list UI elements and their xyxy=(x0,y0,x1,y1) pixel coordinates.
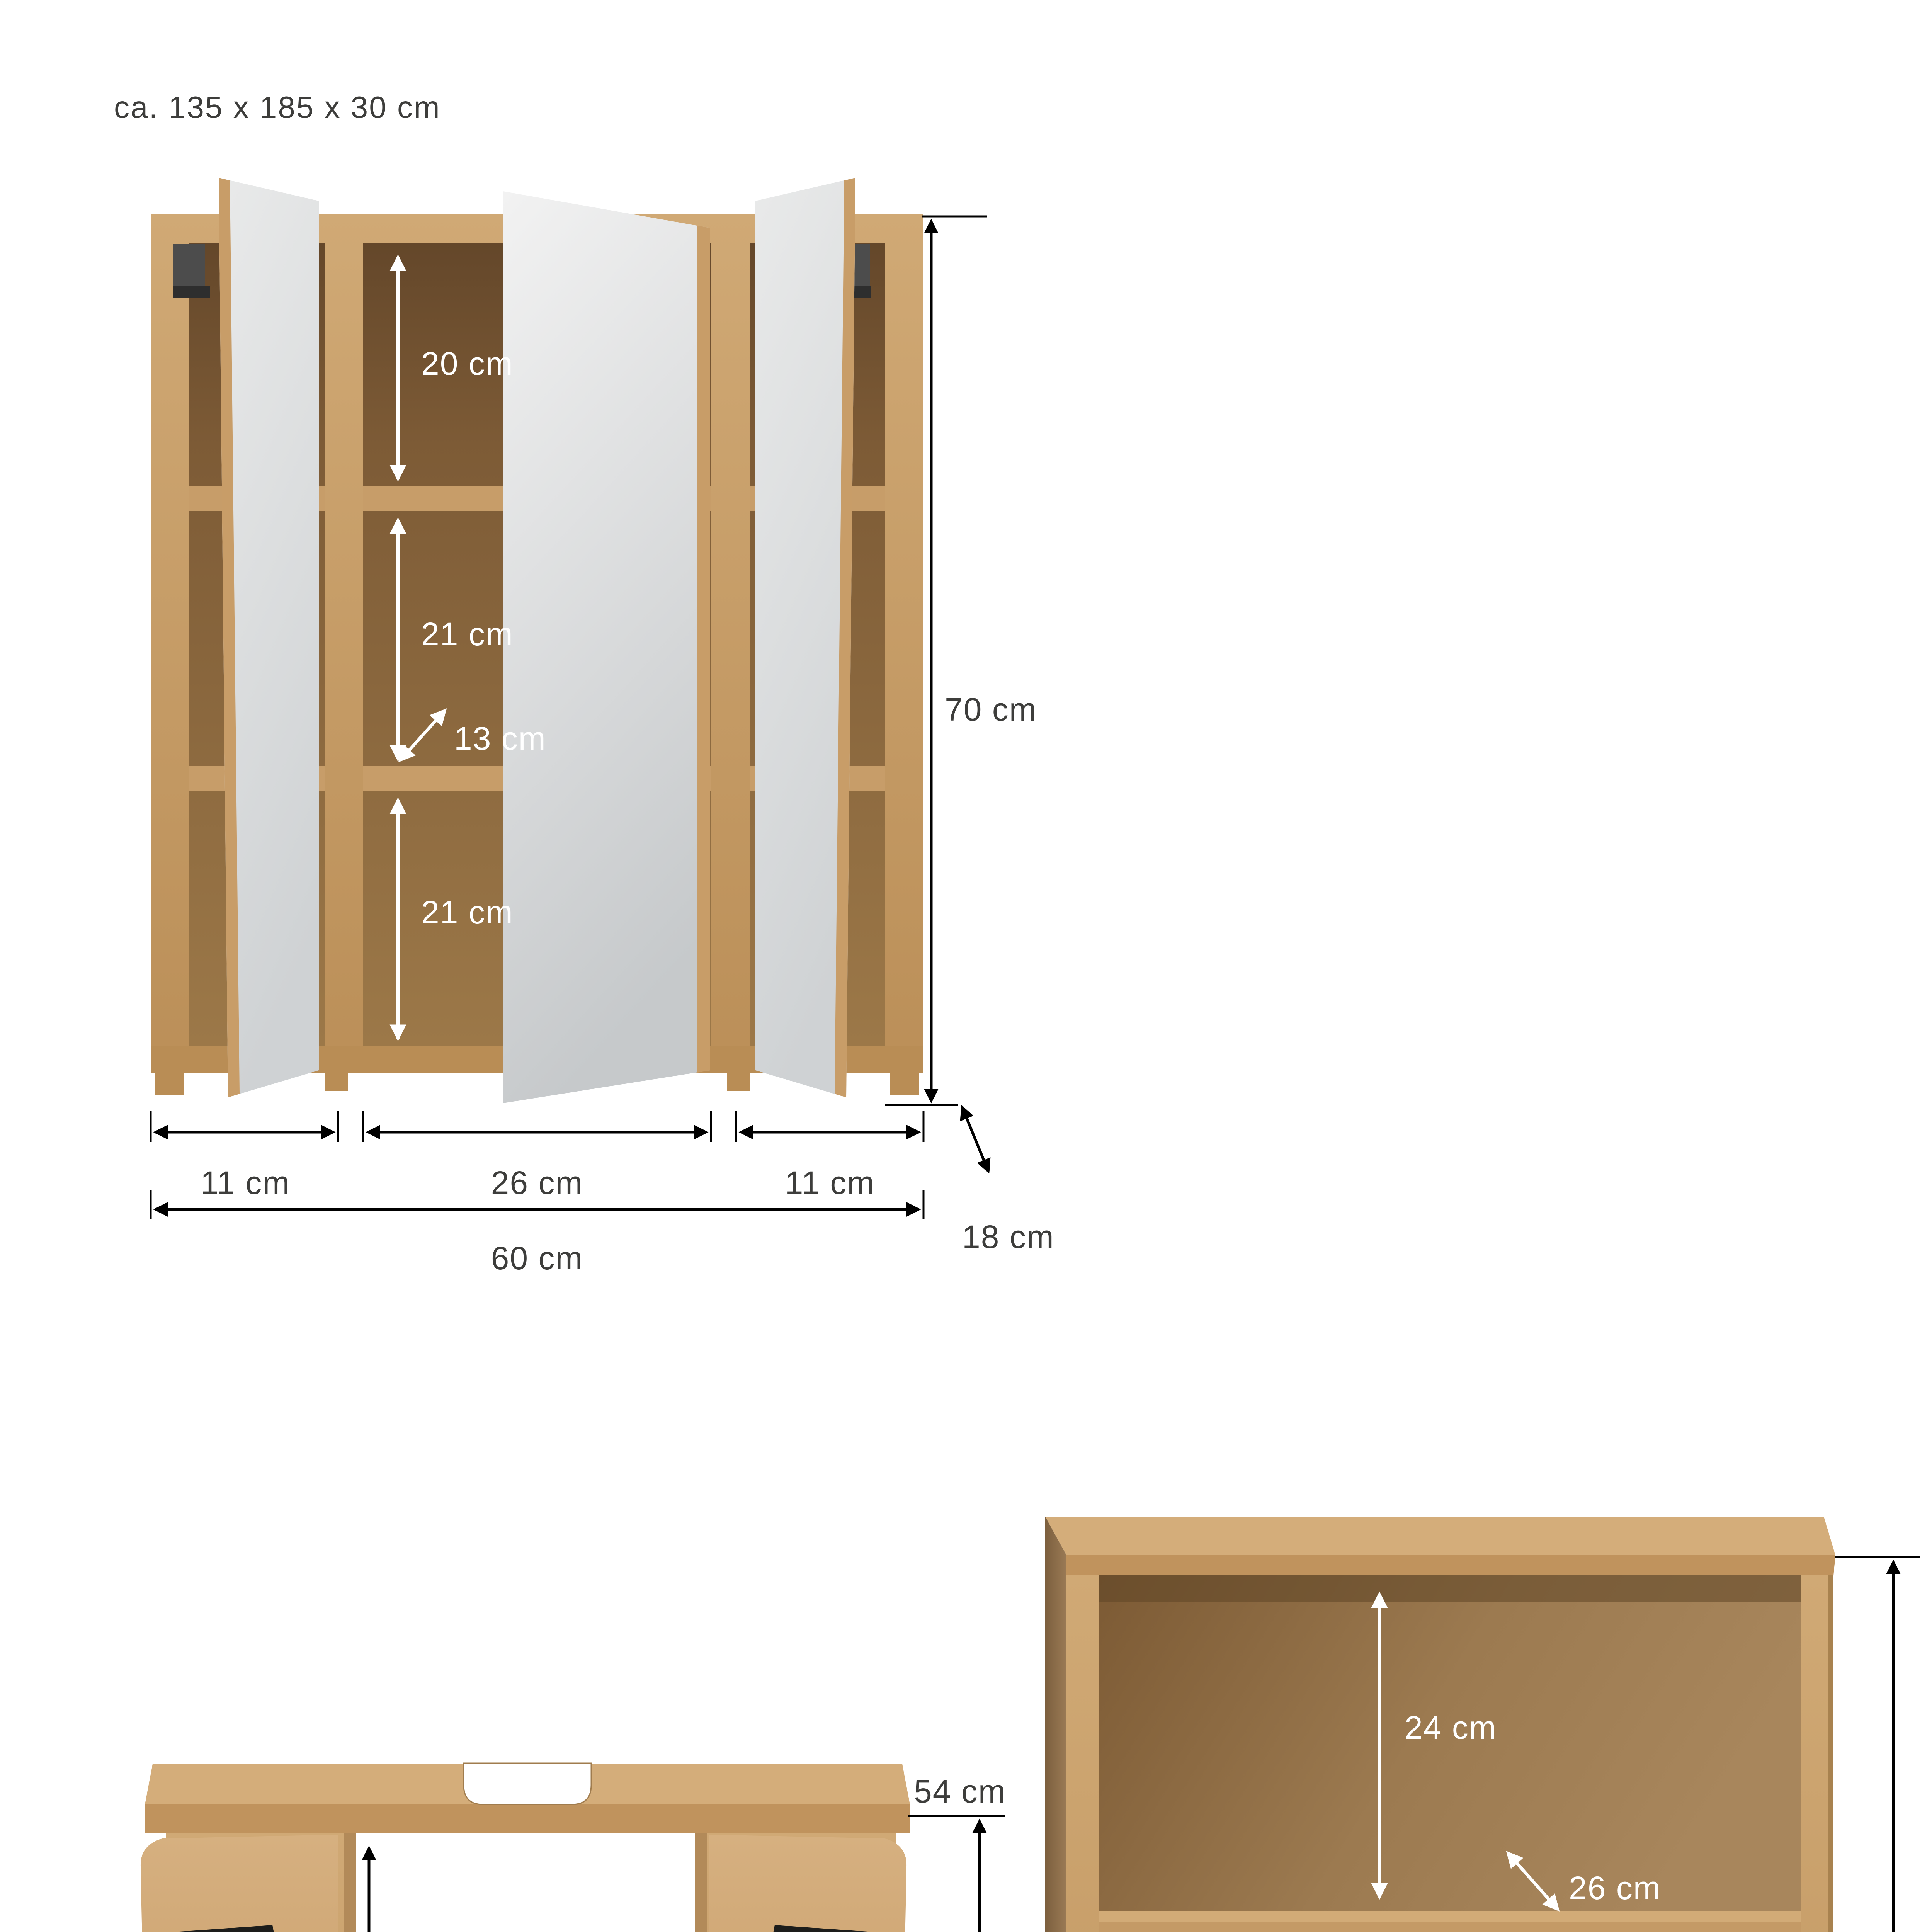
tall-niche-height-label: 24 cm xyxy=(1405,1709,1497,1746)
mirror-inner-middle-label: 21 cm xyxy=(421,616,514,652)
tall-left-side-panel xyxy=(1045,1517,1066,1932)
mirror-left-width-label: 11 cm xyxy=(201,1165,291,1201)
mirror-inner-bottom-label: 21 cm xyxy=(421,894,514,930)
mirror-right-width-label: 11 cm xyxy=(785,1165,875,1201)
mirror-cabinet-figure: 20 cm 21 cm 13 cm 21 cm 70 cm 11 cm 26 c… xyxy=(112,170,1179,1321)
vanity-interior xyxy=(344,1833,707,1932)
tall-niche-depth-label: 26 cm xyxy=(1569,1870,1661,1906)
mirror-depth-label: 18 cm xyxy=(962,1219,1054,1255)
mirror-door-right xyxy=(755,178,855,1097)
mirror-total-width-label: 60 cm xyxy=(491,1240,583,1276)
vanity-top-slab xyxy=(145,1763,910,1833)
mirror-door-left xyxy=(219,178,319,1097)
product-dimension-sheet: ca. 135 x 185 x 30 cm xyxy=(0,0,1932,1932)
mirror-shelf-depth-label: 13 cm xyxy=(454,720,546,757)
mirror-center-width-label: 26 cm xyxy=(491,1165,583,1201)
tall-niche xyxy=(1099,1575,1801,1932)
set-overall-dimensions: ca. 135 x 185 x 30 cm xyxy=(114,90,441,125)
tall-cabinet-figure: 24 cm 26 cm 24 cm 24 cm 80 cm 57 cm 30 c… xyxy=(1024,1499,1932,1932)
mirror-inner-top-label: 20 cm xyxy=(421,345,514,382)
mirror-door-center xyxy=(503,191,710,1103)
vanity-height-label: 54 cm xyxy=(914,1773,1006,1810)
sink-pipe-notch xyxy=(464,1763,591,1804)
mirror-height-label: 70 cm xyxy=(945,691,1037,728)
vanity-cabinet-figure: 24 cm 28 cm 24 cm 54 cm 56 cm 31 cm 60 c… xyxy=(116,1681,1082,1932)
vanity-door-left xyxy=(141,1835,338,1932)
vanity-door-right xyxy=(709,1835,906,1932)
